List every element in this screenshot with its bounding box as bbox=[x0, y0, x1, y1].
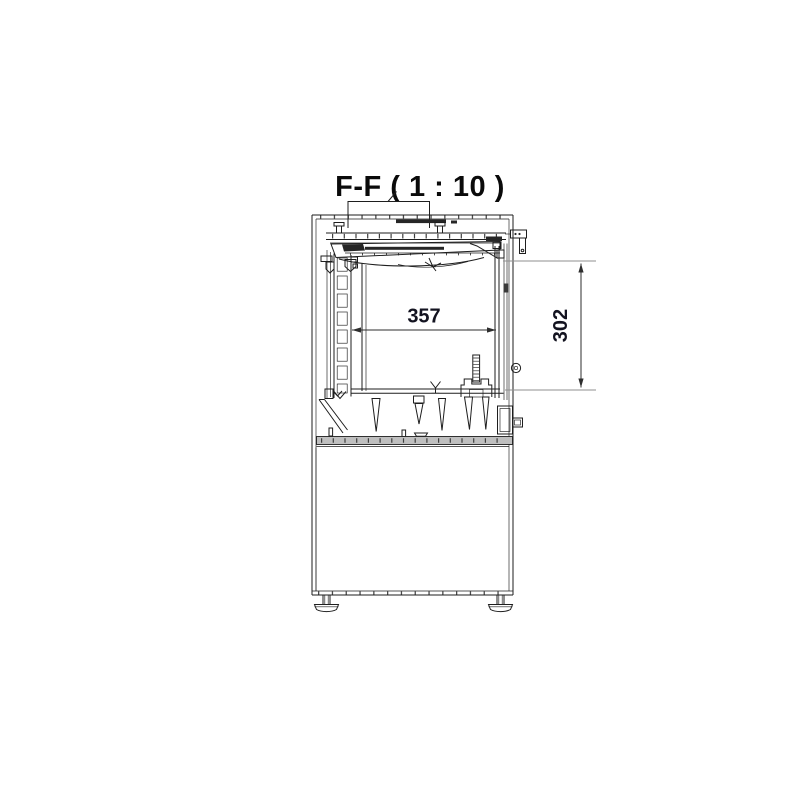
drawing-page: F-F ( 1 : 10 ) bbox=[0, 0, 800, 800]
sump-rib bbox=[415, 404, 423, 425]
lid-bolt-left bbox=[334, 223, 344, 234]
leveling-foot-right bbox=[489, 595, 513, 612]
lid-bolt-right bbox=[435, 223, 445, 234]
section-view-f-f: F-F ( 1 : 10 ) bbox=[0, 0, 800, 800]
filter-pedestal bbox=[461, 355, 492, 430]
lid-assembly bbox=[321, 220, 506, 274]
leveling-foot-left bbox=[315, 595, 339, 612]
view-title: F-F ( 1 : 10 ) bbox=[335, 171, 505, 203]
dim-width-value: 357 bbox=[407, 306, 440, 328]
threaded-rod bbox=[473, 355, 480, 382]
drain-cover bbox=[415, 433, 428, 436]
view-label-group: F-F ( 1 : 10 ) bbox=[335, 171, 505, 228]
door-liner-channel bbox=[327, 250, 358, 399]
door-gasket-curve bbox=[339, 258, 484, 266]
wall-clip bbox=[504, 284, 509, 293]
dim-height-value: 302 bbox=[550, 309, 572, 342]
spray-arm-mount bbox=[431, 382, 441, 394]
base-plate bbox=[317, 437, 513, 445]
dimension-height: 302 bbox=[503, 261, 596, 390]
sump-base bbox=[317, 389, 523, 447]
sump-rib bbox=[439, 399, 446, 431]
pump-housing bbox=[498, 406, 523, 434]
sump-rib bbox=[372, 399, 380, 432]
hinge-bracket bbox=[505, 230, 527, 254]
dimension-width: 357 bbox=[352, 306, 496, 333]
gasket-joint-mark bbox=[425, 258, 441, 271]
